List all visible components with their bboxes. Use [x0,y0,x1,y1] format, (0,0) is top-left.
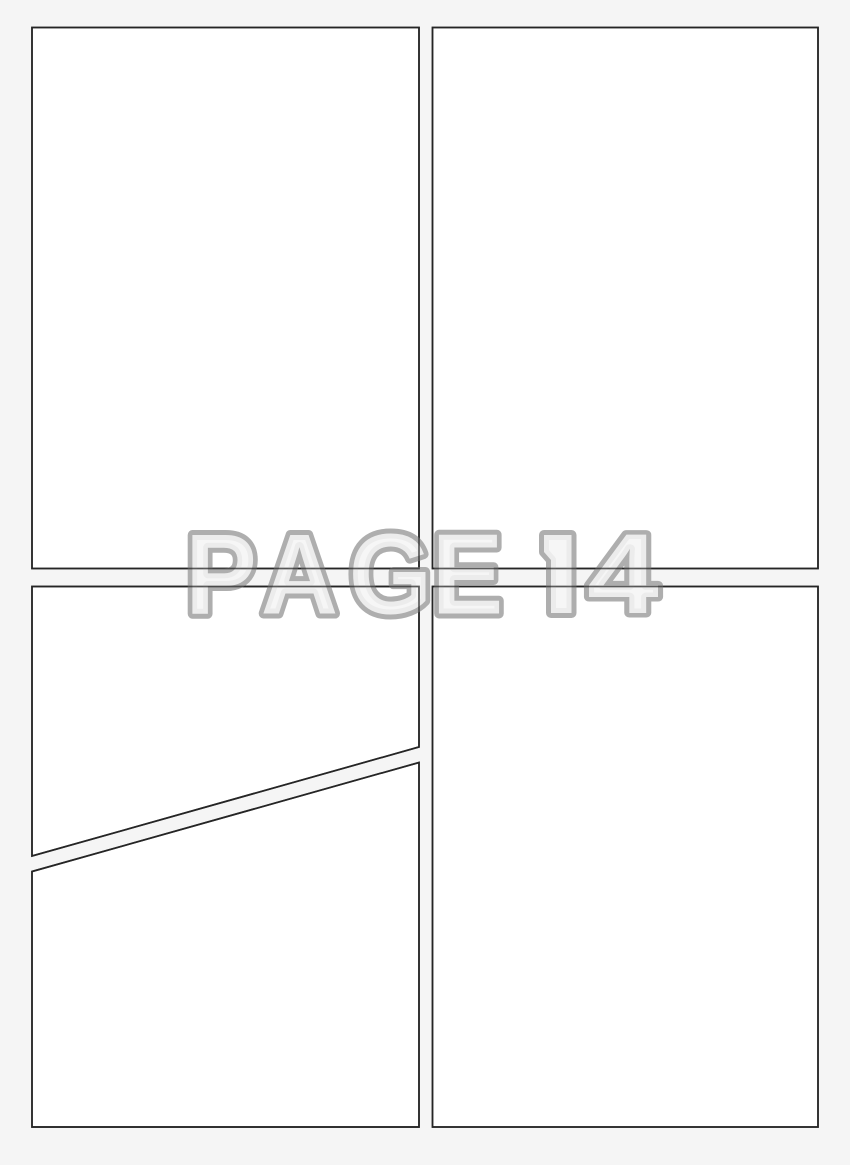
svg-text:4: 4 [587,510,659,637]
